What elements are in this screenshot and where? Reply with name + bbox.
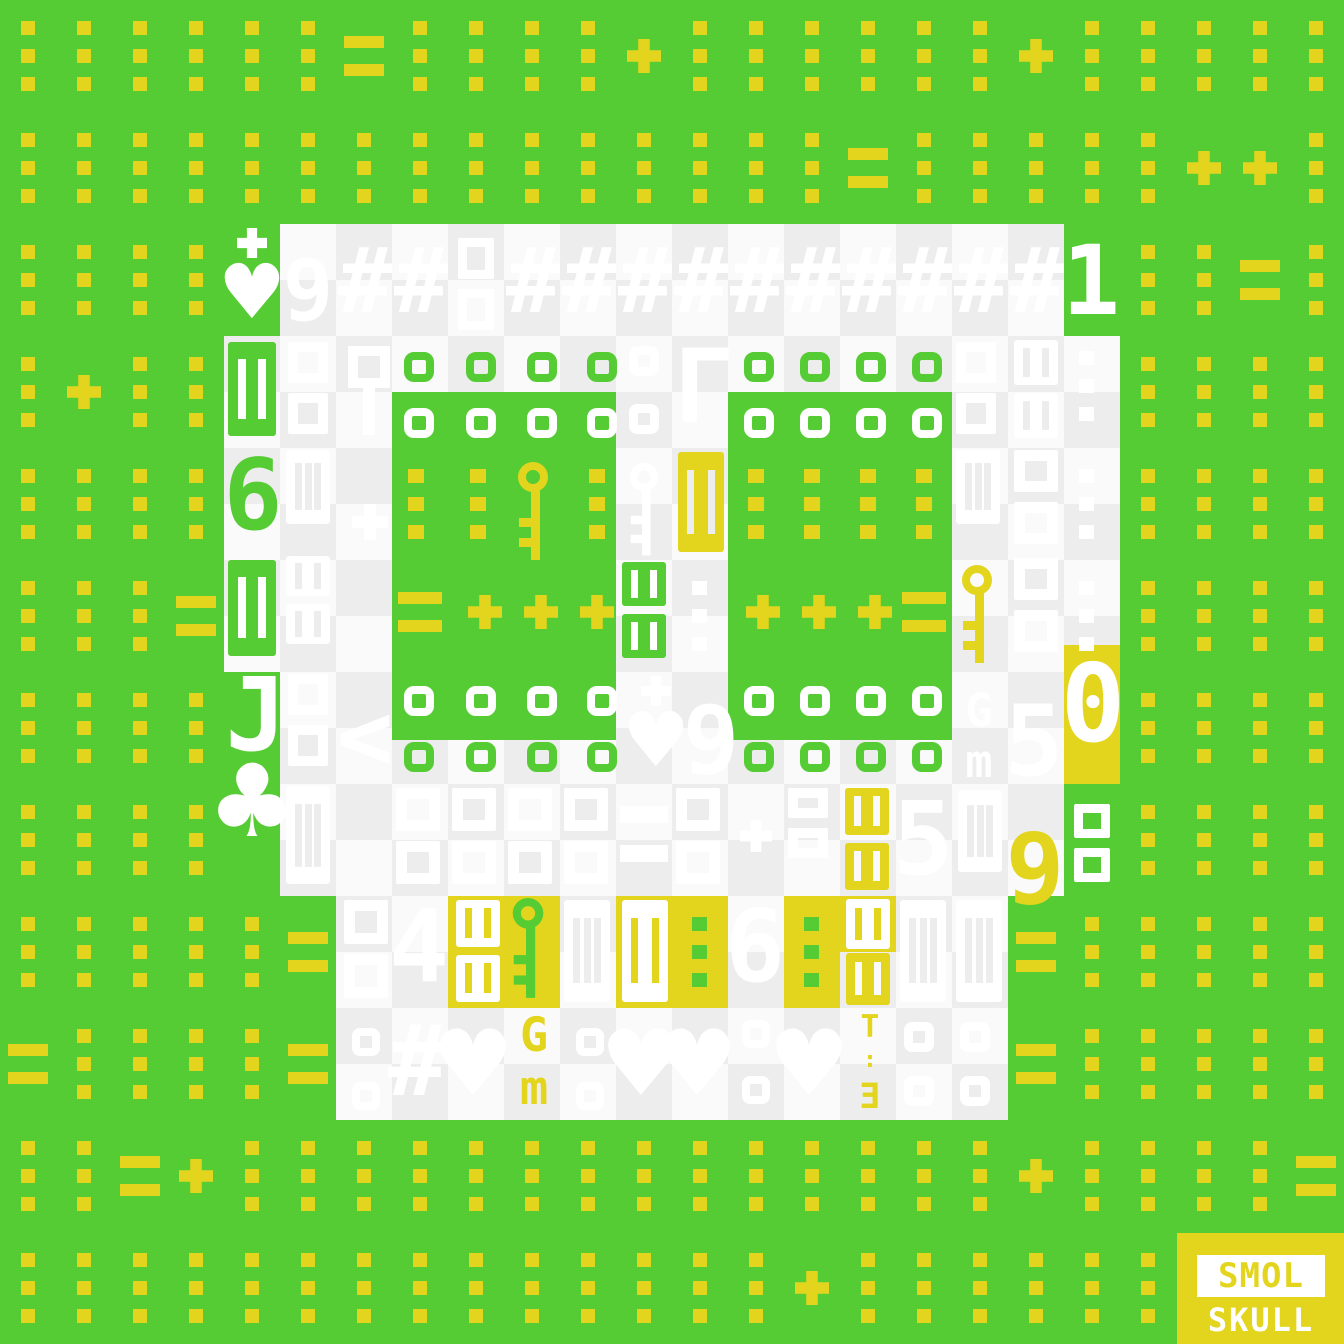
ring-icon xyxy=(856,408,886,438)
slot-box-icon xyxy=(846,953,890,1005)
key-icon xyxy=(514,462,550,566)
ring-icon xyxy=(856,686,886,716)
triple-dots-icon xyxy=(692,917,707,987)
char-glyph-m: m xyxy=(958,739,1000,785)
equals-glyph xyxy=(902,592,946,632)
key-icon xyxy=(508,898,546,1004)
char-glyph-:: : xyxy=(850,1048,890,1072)
double-rings-icon xyxy=(742,1020,770,1104)
char-glyph-#: # xyxy=(506,236,560,328)
ring-icon xyxy=(912,742,942,772)
char-glyph-G: G xyxy=(958,688,1000,734)
slot-box-icon xyxy=(845,843,889,890)
double-box-icon xyxy=(956,342,996,434)
ring-icon xyxy=(744,742,774,772)
triple-dots-icon xyxy=(408,469,424,539)
char-glyph-m: m xyxy=(512,1065,556,1113)
slot-box-icon xyxy=(286,450,330,524)
char-glyph-5: 5 xyxy=(1008,692,1060,792)
ring-icon xyxy=(587,686,617,716)
ring-icon xyxy=(587,352,617,382)
slot-box-icon xyxy=(456,900,500,947)
box-stem-icon xyxy=(348,346,390,440)
char-glyph-#: # xyxy=(618,236,672,328)
logo-text-smol: SMOL xyxy=(1197,1255,1325,1297)
char-glyph-#: # xyxy=(898,236,952,328)
smol-skull-logo: SMOL SKULL xyxy=(1177,1233,1344,1344)
ring-icon xyxy=(912,408,942,438)
slot-box-icon xyxy=(622,562,666,606)
logo-skull-label: SKULL xyxy=(1208,1301,1314,1339)
double-rings-icon xyxy=(960,1022,990,1106)
char-glyph-♥: ♥ xyxy=(632,702,680,780)
ring-icon xyxy=(856,352,886,382)
char-glyph-#: # xyxy=(390,1012,444,1112)
slot-box-icon xyxy=(956,900,1002,1002)
double-box-icon xyxy=(564,788,608,884)
char-glyph-T: T xyxy=(850,1012,890,1044)
triple-dots-icon xyxy=(748,469,764,539)
double-box-icon xyxy=(1014,450,1058,544)
triple-dots-icon xyxy=(470,469,486,539)
char-glyph-♥: ♥ xyxy=(668,1018,726,1112)
plus-dot-glyph xyxy=(580,595,614,629)
equals-glyph xyxy=(620,806,668,862)
char-glyph-#: # xyxy=(394,236,448,328)
triple-dots-icon xyxy=(1079,469,1094,539)
ring-icon xyxy=(527,742,557,772)
char-glyph-♥: ♥ xyxy=(228,254,276,332)
triple-dots-icon xyxy=(1079,581,1094,651)
double-box-icon xyxy=(288,342,328,434)
triple-dots-icon xyxy=(589,469,605,539)
char-glyph-6: 6 xyxy=(226,446,280,546)
slot-box-icon xyxy=(622,614,666,658)
ring-icon xyxy=(466,742,496,772)
ring-icon xyxy=(744,352,774,382)
ring-icon xyxy=(404,408,434,438)
smol-skull-artwork: ♥9############1Γ6 J<♥9Gm50♣594 6#♥Gm♥♥♥T… xyxy=(0,0,1344,1344)
ring-icon xyxy=(404,742,434,772)
slot-box-icon xyxy=(286,786,330,884)
logo-text-skull: SKULL xyxy=(1195,1301,1327,1339)
triple-dots-icon xyxy=(1079,351,1094,421)
slot-box-icon xyxy=(564,900,610,1002)
char-glyph-reversed-E: E xyxy=(850,1079,890,1116)
ring-icon xyxy=(856,742,886,772)
ring-icon xyxy=(527,352,557,382)
char-glyph-4: 4 xyxy=(392,896,446,998)
char-glyph-#: # xyxy=(1010,236,1064,328)
char-glyph-♣: ♣ xyxy=(224,750,280,854)
ring-icon xyxy=(587,408,617,438)
slot-box-icon xyxy=(286,604,330,644)
double-rings-icon xyxy=(629,346,659,434)
char-glyph-♥: ♥ xyxy=(444,1018,502,1112)
slot-box-icon xyxy=(900,900,946,1002)
double-rings-icon xyxy=(576,1028,604,1110)
key-icon xyxy=(626,462,660,562)
ring-icon xyxy=(466,686,496,716)
triple-dots-icon xyxy=(804,917,819,987)
slot-box-icon xyxy=(678,452,724,552)
slot-box-icon xyxy=(622,900,668,1002)
double-box-icon xyxy=(788,788,828,858)
double-box-icon xyxy=(396,788,440,884)
ring-icon xyxy=(466,352,496,382)
double-rings-icon xyxy=(352,1028,380,1110)
char-glyph-6: 6 xyxy=(728,896,782,998)
ring-icon xyxy=(800,686,830,716)
triple-dots-icon xyxy=(860,469,876,539)
ring-icon xyxy=(587,742,617,772)
char-glyph-5: 5 xyxy=(896,788,950,892)
slot-box-icon xyxy=(456,955,500,1002)
ring-icon xyxy=(800,408,830,438)
double-box-icon xyxy=(288,674,328,766)
equals-glyph xyxy=(398,592,442,632)
slot-box-icon xyxy=(228,342,276,436)
triple-dots-icon xyxy=(916,469,932,539)
char-glyph-9: 9 xyxy=(686,694,736,790)
double-rings-icon xyxy=(904,1022,934,1106)
char-glyph-<: < xyxy=(340,690,390,786)
char-glyph-#: # xyxy=(842,236,896,328)
double-box-icon xyxy=(1074,804,1110,882)
slot-box-icon xyxy=(228,560,276,656)
char-glyph-♥: ♥ xyxy=(780,1018,838,1112)
ring-icon xyxy=(466,408,496,438)
char-glyph-Γ: Γ xyxy=(684,336,724,440)
char-glyph-#: # xyxy=(338,236,392,328)
ring-icon xyxy=(404,686,434,716)
plus-dot-glyph xyxy=(352,504,388,540)
ring-icon xyxy=(744,408,774,438)
double-box-icon xyxy=(508,788,552,884)
char-glyph-G: G xyxy=(512,1012,556,1060)
ring-icon xyxy=(912,686,942,716)
logo-smol-label: SMOL xyxy=(1218,1256,1304,1296)
char-glyph-#: # xyxy=(954,236,1008,328)
plus-dot-glyph xyxy=(524,595,558,629)
ring-icon xyxy=(912,352,942,382)
double-box-icon xyxy=(1014,558,1058,652)
plus-dot-glyph xyxy=(858,595,892,629)
plus-dot-glyph xyxy=(746,595,780,629)
ring-icon xyxy=(800,742,830,772)
ring-icon xyxy=(404,352,434,382)
slot-box-icon xyxy=(1014,393,1058,438)
slot-box-icon xyxy=(1014,340,1058,385)
plus-dot-glyph xyxy=(740,820,772,852)
char-glyph-0: 0 xyxy=(1068,650,1118,760)
slot-box-icon xyxy=(958,790,1002,872)
double-box-icon xyxy=(458,238,494,330)
char-glyph-#: # xyxy=(786,236,840,328)
slot-box-icon xyxy=(286,556,330,596)
slot-box-icon xyxy=(846,899,890,949)
char-glyph-#: # xyxy=(674,236,728,328)
char-glyph-#: # xyxy=(730,236,784,328)
double-box-icon xyxy=(452,788,496,884)
plus-dot-glyph xyxy=(468,595,502,629)
char-glyph-1: 1 xyxy=(1066,232,1116,330)
char-glyph-9: 9 xyxy=(1010,820,1060,920)
ring-icon xyxy=(744,686,774,716)
triple-dots-icon xyxy=(804,469,820,539)
double-box-icon xyxy=(676,788,720,884)
ring-icon xyxy=(800,352,830,382)
char-glyph-#: # xyxy=(562,236,616,328)
skull-glyphs: ♥9############1Γ6 J<♥9Gm50♣594 6#♥Gm♥♥♥T… xyxy=(0,0,1344,1344)
char-glyph-♥: ♥ xyxy=(612,1018,670,1112)
slot-box-icon xyxy=(956,450,1000,524)
ring-icon xyxy=(527,686,557,716)
ring-icon xyxy=(527,408,557,438)
triple-dots-icon xyxy=(692,581,707,651)
double-box-icon xyxy=(344,900,388,998)
key-icon xyxy=(958,564,994,670)
slot-box-icon xyxy=(845,788,889,835)
plus-dot-glyph xyxy=(802,595,836,629)
char-glyph-9: 9 xyxy=(282,248,334,334)
